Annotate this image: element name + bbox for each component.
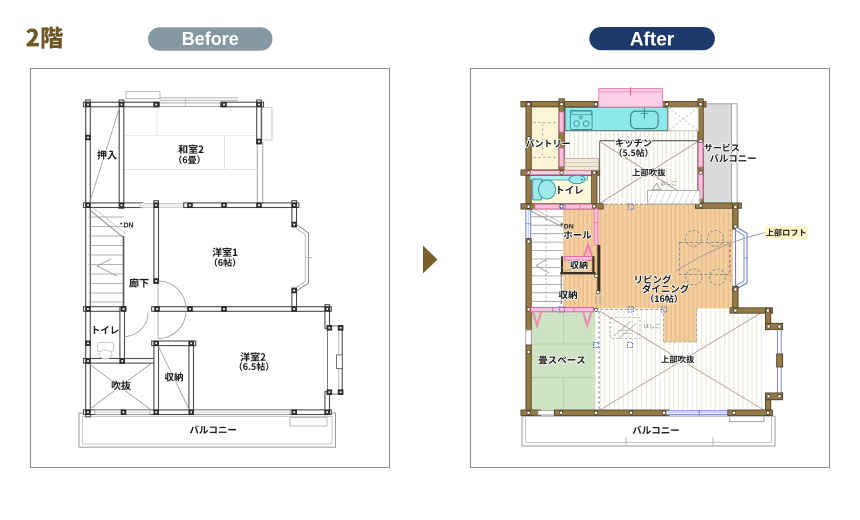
svg-text:Before: Before: [182, 29, 239, 49]
svg-text:DN: DN: [564, 224, 574, 231]
svg-text:After: After: [630, 30, 675, 51]
svg-text:DN: DN: [124, 222, 134, 229]
